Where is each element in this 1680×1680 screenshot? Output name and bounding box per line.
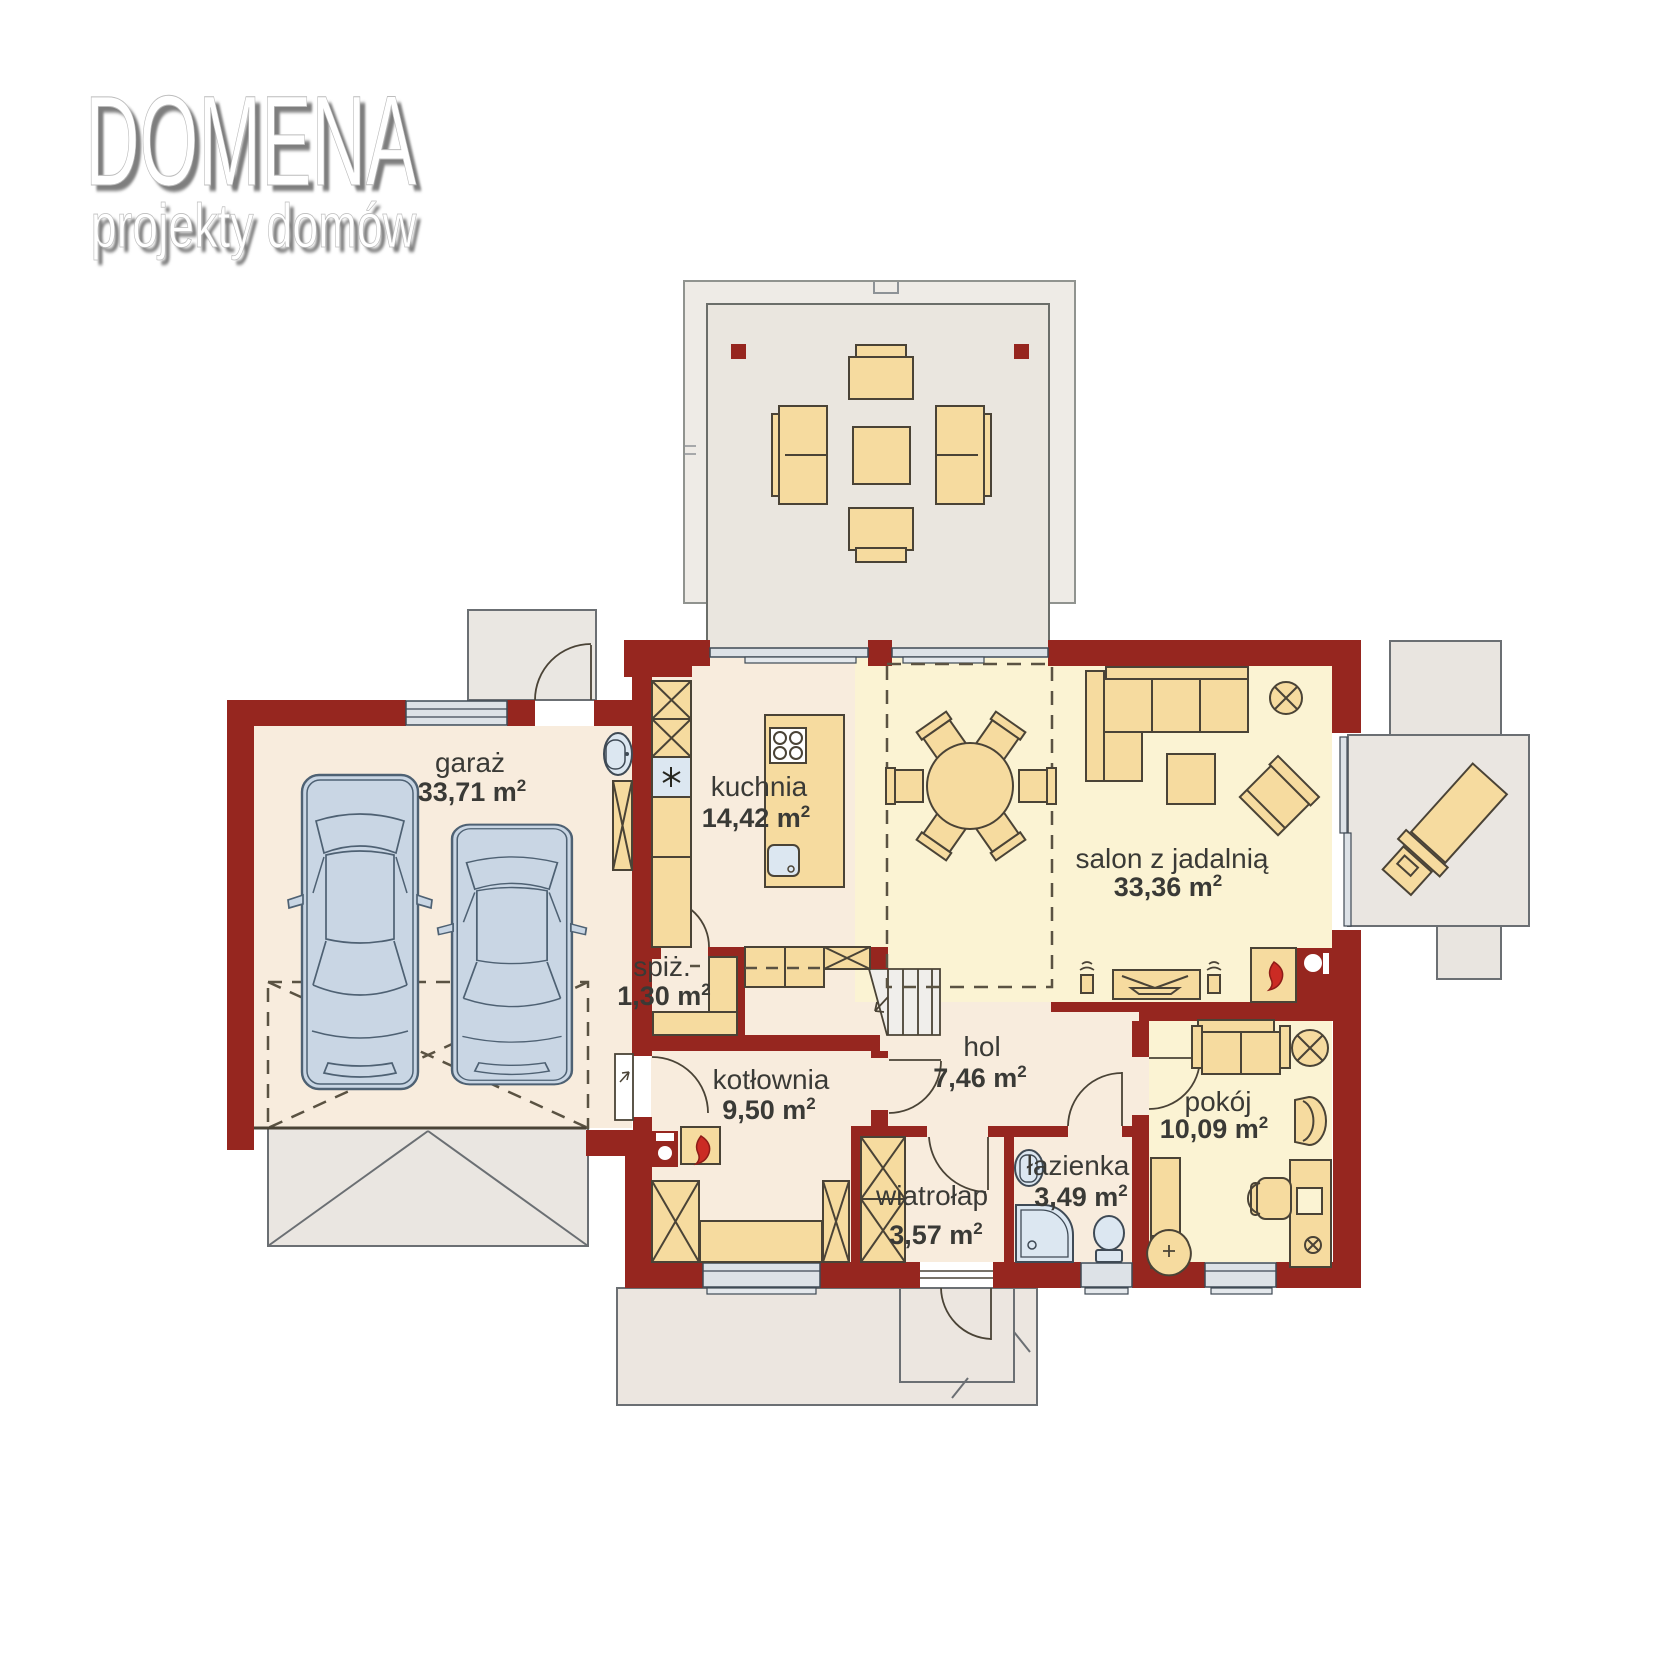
svg-text:10,09 m2: 10,09 m2 [1160,1113,1269,1144]
svg-text:33,71 m2: 33,71 m2 [418,776,527,807]
svg-text:garaż: garaż [435,747,505,778]
svg-text:projekty domów: projekty domów [91,190,417,260]
svg-text:wiatrołap: wiatrołap [875,1180,988,1211]
svg-text:kotłownia: kotłownia [713,1064,830,1095]
svg-text:3,49 m2: 3,49 m2 [1034,1181,1128,1212]
svg-text:7,46 m2: 7,46 m2 [933,1062,1027,1093]
svg-text:3,57 m2: 3,57 m2 [889,1219,983,1250]
svg-text:9,50 m2: 9,50 m2 [722,1094,816,1125]
svg-text:pokój: pokój [1185,1086,1252,1117]
svg-text:1,30 m2: 1,30 m2 [617,980,711,1011]
svg-text:kuchnia: kuchnia [711,771,808,802]
svg-text:14,42 m2: 14,42 m2 [702,802,811,833]
svg-text:salon z jadalnią: salon z jadalnią [1075,843,1268,874]
svg-text:łazienka: łazienka [1027,1150,1130,1181]
svg-text:hol: hol [963,1031,1000,1062]
svg-text:spiż.: spiż. [633,951,691,982]
svg-text:33,36 m2: 33,36 m2 [1114,871,1223,902]
